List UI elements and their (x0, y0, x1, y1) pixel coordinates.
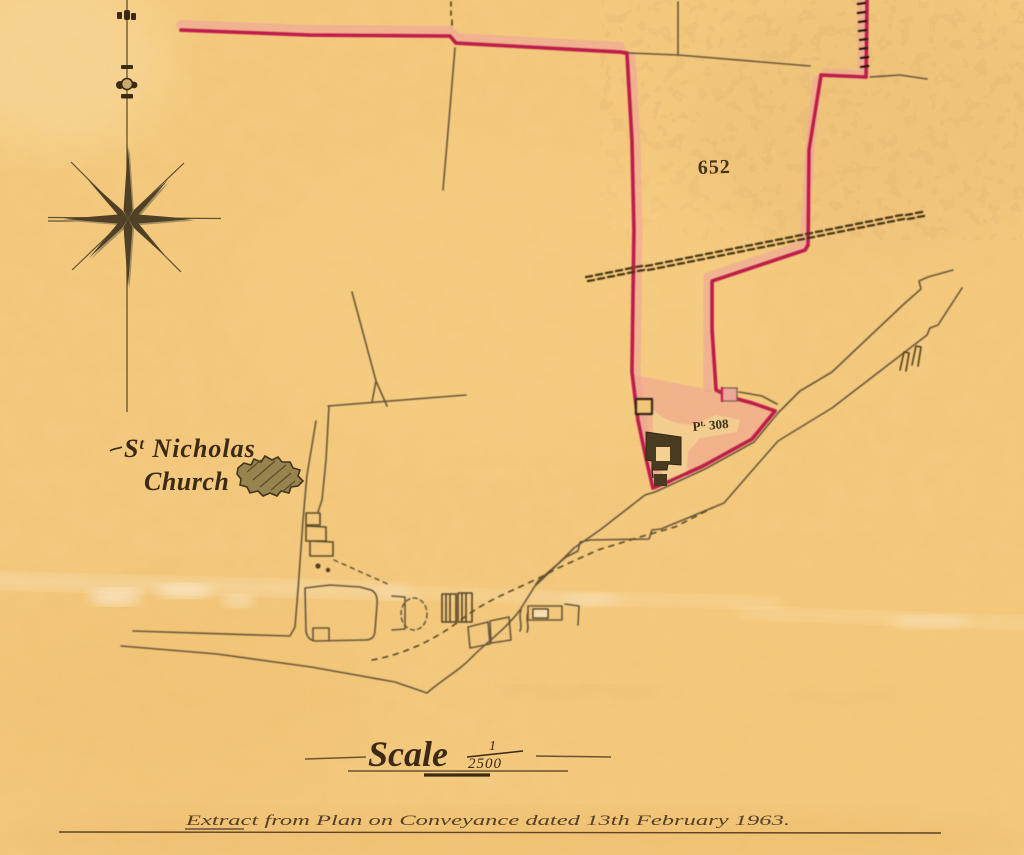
svg-text:Scale: Scale (368, 734, 448, 774)
svg-text:2500: 2500 (468, 756, 502, 772)
svg-text:1: 1 (489, 739, 496, 754)
svg-text:Extract from Plan on Conveyanc: Extract from Plan on Conveyance dated 13… (184, 813, 790, 829)
svg-text:Church: Church (144, 467, 229, 496)
svg-text:Pt. 308: Pt. 308 (692, 416, 730, 434)
svg-text:652: 652 (697, 156, 731, 179)
